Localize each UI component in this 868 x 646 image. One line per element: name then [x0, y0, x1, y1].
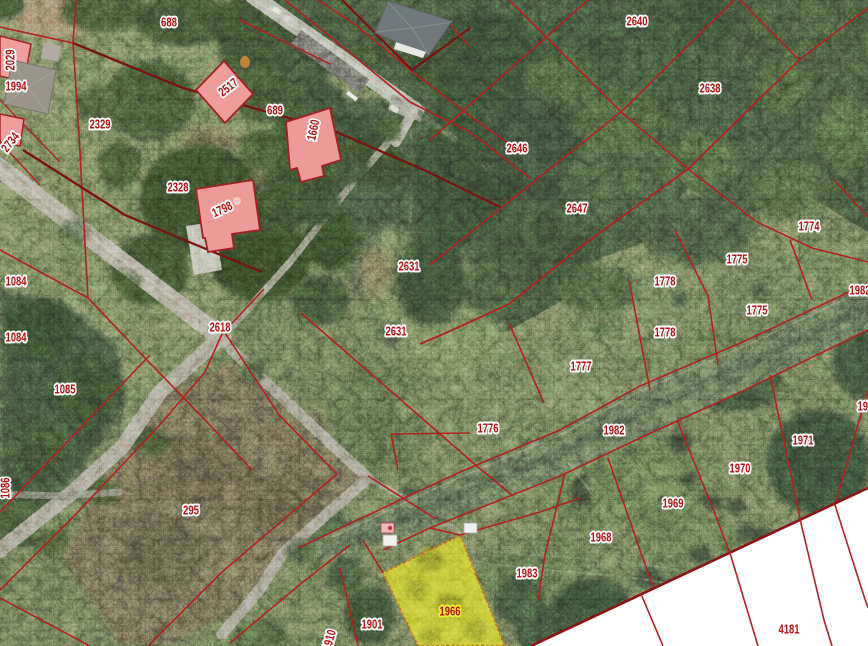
- svg-text:1983: 1983: [517, 566, 538, 580]
- svg-text:1970: 1970: [730, 461, 751, 475]
- svg-text:688: 688: [161, 15, 177, 29]
- svg-text:1086: 1086: [0, 477, 12, 498]
- svg-text:1084: 1084: [6, 274, 27, 288]
- svg-text:1994: 1994: [6, 79, 27, 93]
- svg-text:1084: 1084: [6, 330, 27, 344]
- svg-text:1982: 1982: [850, 283, 868, 297]
- svg-text:1901: 1901: [362, 617, 383, 631]
- svg-text:1777: 1777: [571, 359, 592, 373]
- svg-text:1971: 1971: [793, 433, 814, 447]
- svg-text:2631: 2631: [386, 324, 407, 338]
- svg-text:2640: 2640: [627, 14, 648, 28]
- svg-text:1778: 1778: [655, 274, 676, 288]
- svg-text:1775: 1775: [747, 303, 768, 317]
- svg-text:2029: 2029: [3, 49, 17, 70]
- svg-text:1982: 1982: [604, 423, 625, 437]
- svg-text:1776: 1776: [478, 421, 499, 435]
- svg-text:2329: 2329: [90, 117, 111, 131]
- svg-text:1778: 1778: [655, 325, 676, 339]
- svg-text:295: 295: [183, 503, 199, 517]
- svg-text:689: 689: [267, 103, 283, 117]
- svg-text:2647: 2647: [567, 201, 588, 215]
- svg-text:1774: 1774: [799, 219, 820, 233]
- svg-text:2638: 2638: [700, 81, 721, 95]
- svg-text:1969: 1969: [663, 496, 684, 510]
- svg-text:4181: 4181: [779, 622, 800, 636]
- svg-text:2631: 2631: [399, 259, 420, 273]
- svg-text:2328: 2328: [168, 180, 189, 194]
- svg-text:2618: 2618: [210, 320, 231, 334]
- svg-text:1775: 1775: [727, 252, 748, 266]
- svg-text:1972: 1972: [858, 399, 868, 413]
- svg-text:1968: 1968: [591, 530, 612, 544]
- svg-text:2646: 2646: [507, 141, 528, 155]
- svg-text:1085: 1085: [55, 382, 76, 396]
- svg-text:1966: 1966: [440, 604, 461, 618]
